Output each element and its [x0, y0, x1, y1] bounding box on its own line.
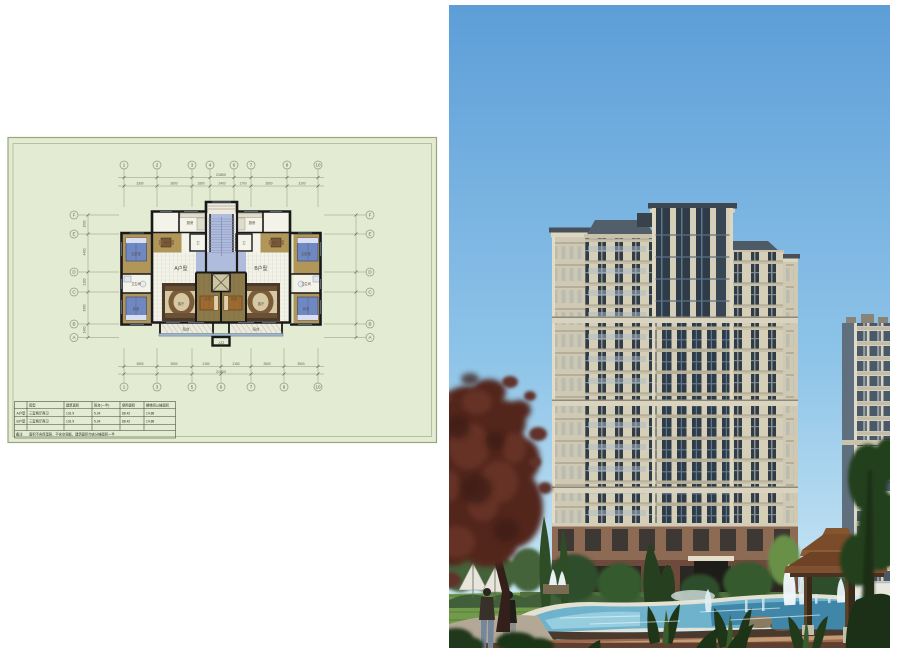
- svg-text:厨房: 厨房: [249, 220, 256, 225]
- svg-text:餐厅: 餐厅: [272, 240, 279, 245]
- svg-text:使用面积: 使用面积: [122, 403, 136, 408]
- svg-text:卧室: 卧室: [133, 306, 139, 311]
- svg-text:3500: 3500: [136, 362, 143, 366]
- svg-text:A户型: A户型: [17, 411, 26, 416]
- svg-text:5.34: 5.34: [94, 412, 101, 416]
- svg-text:B: B: [72, 322, 75, 327]
- svg-text:阳台: 阳台: [253, 327, 260, 332]
- svg-text:F: F: [73, 213, 76, 218]
- svg-text:88.42: 88.42: [122, 420, 130, 424]
- svg-text:卧室: 卧室: [303, 306, 309, 311]
- svg-text:卫生间: 卫生间: [301, 281, 311, 286]
- svg-text:E: E: [368, 232, 371, 237]
- svg-text:厨房: 厨房: [187, 220, 194, 225]
- svg-text:14.88: 14.88: [146, 420, 154, 424]
- svg-text:1700: 1700: [239, 182, 246, 186]
- svg-text:2150: 2150: [232, 362, 239, 366]
- svg-text:阳台(一半): 阳台(一半): [94, 403, 109, 408]
- svg-text:1400: 1400: [83, 326, 87, 333]
- svg-text:A: A: [368, 335, 371, 340]
- svg-text:3300: 3300: [83, 304, 87, 311]
- svg-text:卫生间: 卫生间: [131, 281, 141, 286]
- svg-text:10: 10: [315, 163, 321, 168]
- svg-text:2100: 2100: [83, 278, 87, 285]
- svg-text:1500: 1500: [83, 220, 87, 227]
- svg-text:1800: 1800: [197, 182, 204, 186]
- svg-text:14.88: 14.88: [146, 412, 154, 416]
- svg-text:卧室: 卧室: [205, 296, 211, 301]
- svg-text:卧室: 卧室: [231, 296, 237, 301]
- svg-text:21800: 21800: [216, 173, 226, 177]
- svg-text:88.42: 88.42: [122, 412, 130, 416]
- svg-text:A: A: [72, 335, 75, 340]
- svg-text:主卧室: 主卧室: [131, 251, 141, 256]
- svg-text:面积不含保温层，不含空调板，建筑面积均含分摊面积一半: 面积不含保温层，不含空调板，建筑面积均含分摊面积一半: [29, 432, 115, 437]
- svg-text:A户型: A户型: [174, 265, 187, 272]
- svg-text:房型: 房型: [29, 403, 36, 408]
- svg-text:三室两厅两卫: 三室两厅两卫: [29, 419, 49, 424]
- svg-text:三室两厅两卫: 三室两厅两卫: [29, 411, 49, 416]
- svg-text:客厅: 客厅: [258, 301, 265, 306]
- svg-text:10: 10: [315, 385, 321, 390]
- svg-text:3500: 3500: [297, 362, 304, 366]
- svg-text:楼梯间公摊面积: 楼梯间公摊面积: [146, 403, 170, 408]
- svg-text:131.9: 131.9: [66, 420, 74, 424]
- svg-text:2600: 2600: [170, 362, 177, 366]
- svg-text:2150: 2150: [202, 362, 209, 366]
- svg-text:入口: 入口: [218, 341, 224, 345]
- svg-text:131.9: 131.9: [66, 412, 74, 416]
- svg-text:2600: 2600: [263, 362, 270, 366]
- svg-text:建筑面积: 建筑面积: [66, 403, 80, 408]
- svg-text:主卧室: 主卧室: [301, 251, 311, 256]
- svg-text:餐厅: 餐厅: [164, 240, 171, 245]
- svg-text:3300: 3300: [136, 182, 143, 186]
- svg-text:B: B: [368, 322, 371, 327]
- svg-text:5.34: 5.34: [94, 420, 101, 424]
- svg-text:客厅: 客厅: [178, 301, 185, 306]
- svg-text:4400: 4400: [83, 248, 87, 255]
- svg-text:F: F: [369, 213, 372, 218]
- svg-text:3600: 3600: [265, 182, 272, 186]
- svg-text:备注: 备注: [16, 432, 23, 437]
- svg-text:21800: 21800: [216, 370, 226, 374]
- svg-text:2400: 2400: [218, 182, 225, 186]
- svg-text:B户型: B户型: [254, 265, 267, 272]
- svg-text:3100: 3100: [298, 182, 305, 186]
- svg-text:3600: 3600: [170, 182, 177, 186]
- svg-text:B户型: B户型: [17, 419, 26, 424]
- svg-text:E: E: [72, 232, 75, 237]
